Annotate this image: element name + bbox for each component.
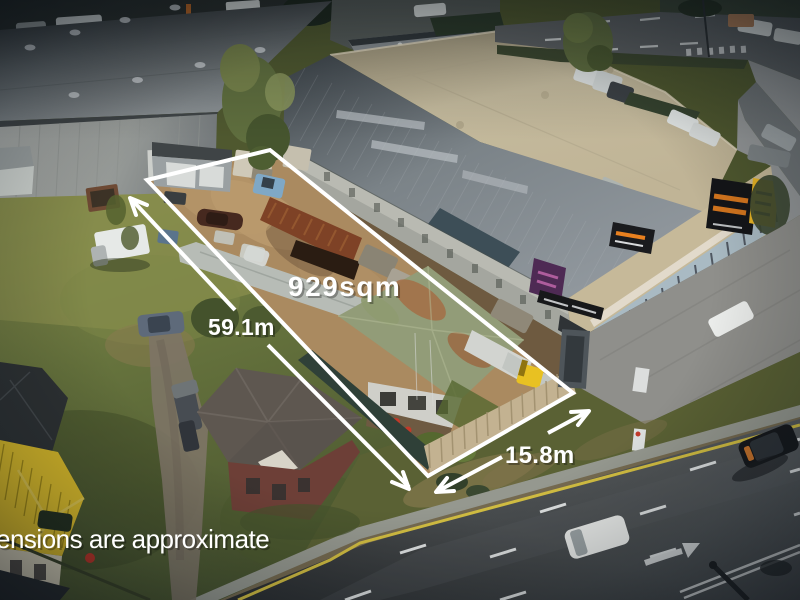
svg-text:59.1m: 59.1m [208, 314, 275, 340]
svg-text:15.8m: 15.8m [505, 442, 575, 469]
svg-text:929sqm: 929sqm [288, 271, 401, 302]
svg-text:ensions are approximate: ensions are approximate [0, 524, 269, 554]
